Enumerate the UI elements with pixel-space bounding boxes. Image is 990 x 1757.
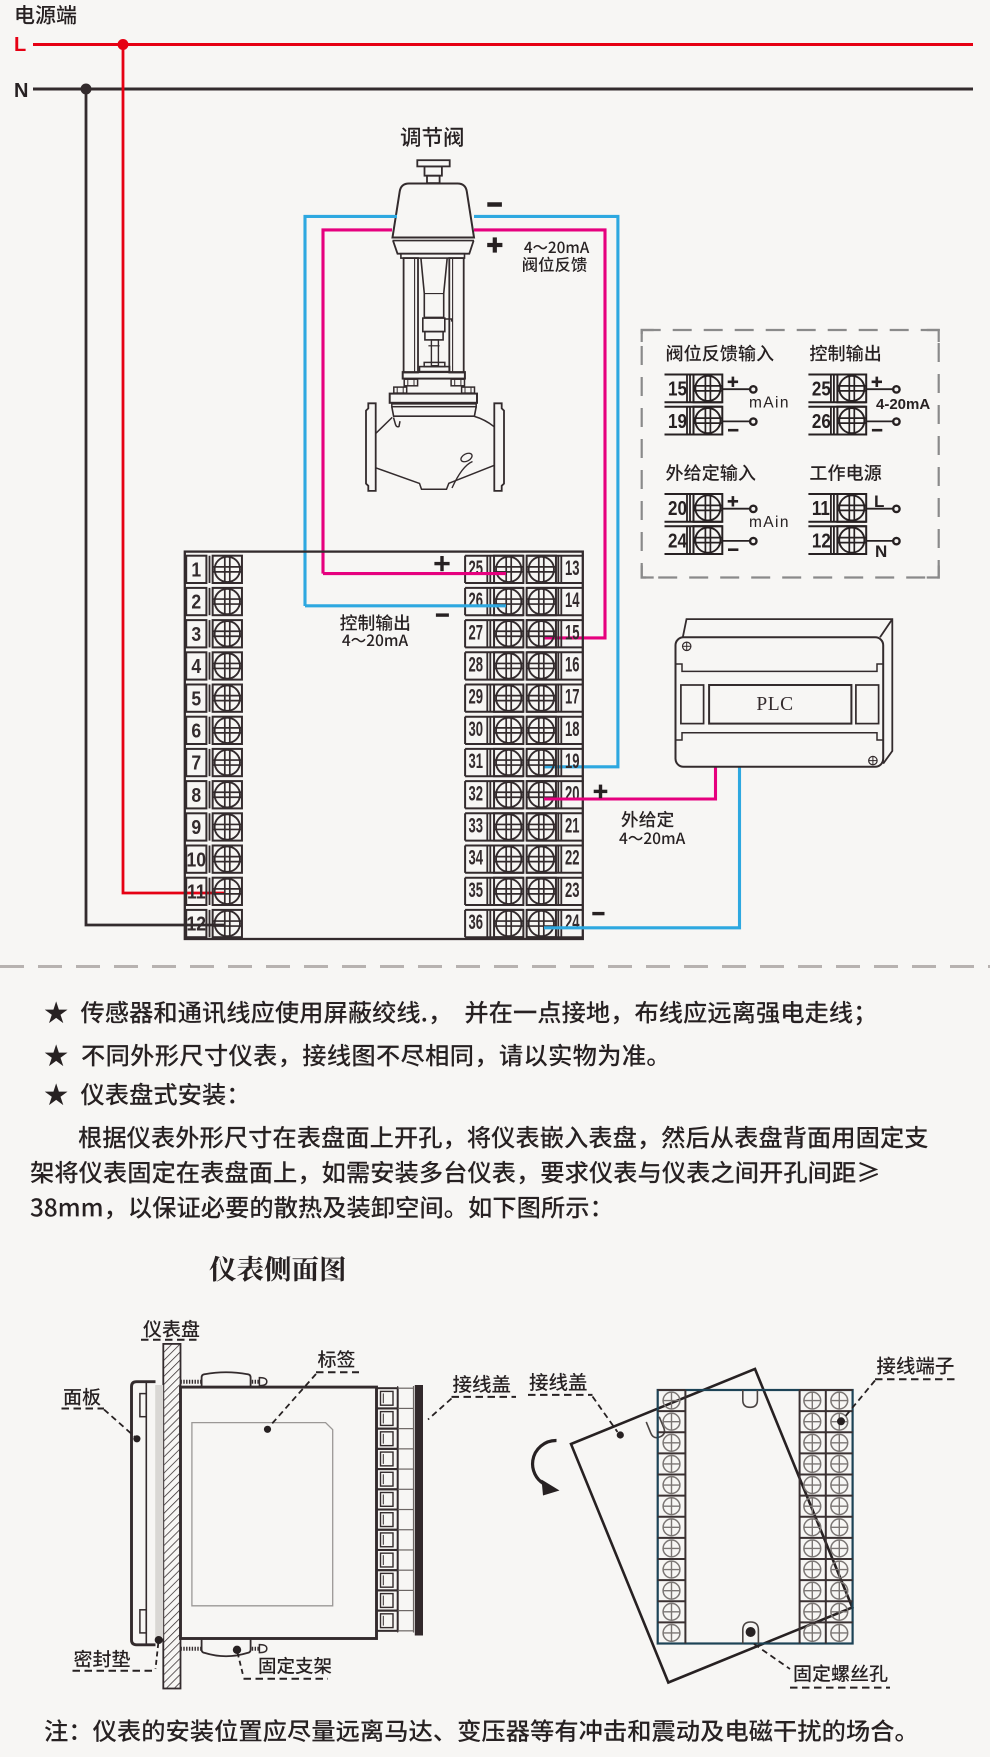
svg-text:PLC: PLC — [756, 694, 793, 715]
svg-text:30: 30 — [469, 717, 483, 741]
svg-text:4: 4 — [191, 655, 201, 677]
svg-text:10: 10 — [187, 848, 207, 870]
svg-text:2: 2 — [191, 591, 201, 613]
svg-text:36: 36 — [469, 910, 484, 934]
svg-text:21: 21 — [565, 813, 580, 837]
svg-text:19: 19 — [565, 749, 580, 773]
svg-text:8: 8 — [191, 784, 201, 806]
svg-text:22: 22 — [565, 845, 580, 869]
svg-text:31: 31 — [469, 749, 484, 773]
svg-text:4-20mA: 4-20mA — [876, 396, 930, 413]
svg-text:mAin: mAin — [749, 514, 790, 531]
svg-text:24: 24 — [565, 910, 580, 934]
svg-text:27: 27 — [469, 620, 483, 644]
svg-text:32: 32 — [469, 781, 484, 805]
svg-text:19: 19 — [668, 409, 687, 432]
svg-text:17: 17 — [565, 684, 579, 708]
svg-text:34: 34 — [469, 845, 484, 869]
svg-text:13: 13 — [565, 556, 580, 580]
svg-text:L: L — [14, 34, 26, 56]
svg-text:N: N — [14, 80, 28, 102]
svg-text:3: 3 — [191, 623, 201, 645]
svg-text:26: 26 — [812, 409, 831, 432]
svg-text:23: 23 — [565, 878, 580, 902]
svg-text:5: 5 — [191, 687, 201, 709]
svg-text:11: 11 — [812, 497, 830, 520]
svg-text:11: 11 — [187, 880, 206, 902]
svg-text:12: 12 — [187, 913, 207, 935]
svg-text:7: 7 — [191, 752, 201, 774]
svg-text:25: 25 — [469, 556, 484, 580]
svg-text:L: L — [874, 492, 884, 511]
svg-text:N: N — [875, 542, 887, 561]
svg-text:18: 18 — [565, 717, 580, 741]
svg-text:1: 1 — [191, 558, 201, 580]
svg-text:25: 25 — [812, 377, 831, 400]
svg-text:6: 6 — [191, 719, 201, 741]
svg-text:9: 9 — [191, 816, 201, 838]
svg-text:15: 15 — [565, 620, 580, 644]
svg-text:16: 16 — [565, 652, 580, 676]
svg-text:26: 26 — [469, 588, 484, 612]
svg-text:mAin: mAin — [749, 395, 790, 412]
svg-text:33: 33 — [469, 813, 484, 837]
svg-text:28: 28 — [469, 652, 484, 676]
svg-text:12: 12 — [812, 529, 831, 552]
svg-text:20: 20 — [668, 497, 687, 520]
svg-text:20: 20 — [565, 781, 579, 805]
svg-text:29: 29 — [469, 684, 484, 708]
svg-text:24: 24 — [668, 529, 687, 552]
svg-text:15: 15 — [668, 377, 687, 400]
svg-text:14: 14 — [565, 588, 580, 612]
svg-text:35: 35 — [469, 878, 484, 902]
